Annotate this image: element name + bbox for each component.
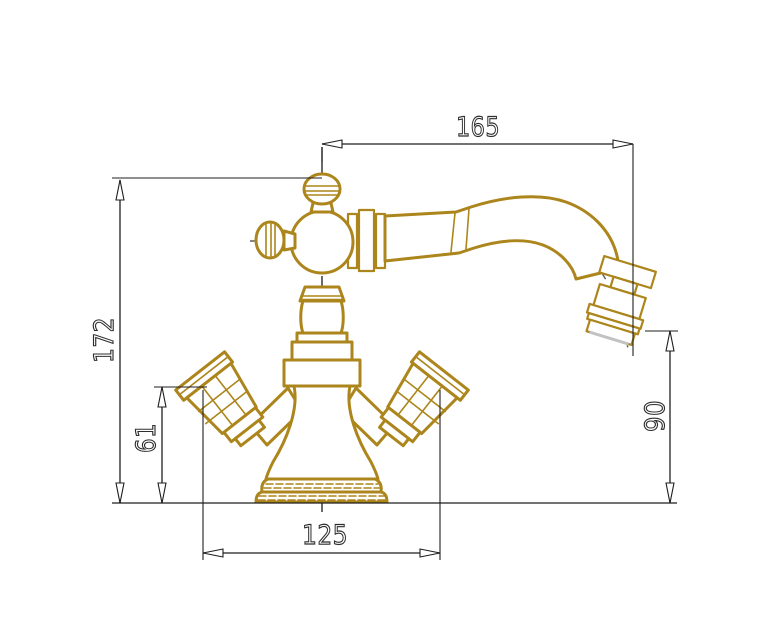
faucet-outline [176, 174, 658, 502]
dimension-label-handle-height: 61 [131, 423, 162, 453]
faucet-dimension-drawing: 165 172 61 90 125 [0, 0, 767, 641]
technical-drawing-canvas: 165 172 61 90 125 [0, 0, 767, 641]
valve-body-sphere [291, 211, 353, 273]
swan-neck-spout [385, 197, 618, 279]
dimension-outlet-height: 90 [640, 331, 678, 503]
top-screw-knob [304, 174, 340, 212]
right-cross-handle [368, 352, 469, 456]
dimension-label-handle-span: 125 [302, 520, 348, 551]
dimension-label-spout-reach: 165 [456, 112, 500, 143]
base-plinth [256, 479, 387, 502]
side-screw-knob [256, 222, 295, 258]
dimension-label-total-height: 172 [89, 317, 120, 363]
column-stack [284, 287, 360, 386]
left-cross-handle [176, 352, 277, 456]
dimension-label-outlet-height: 90 [640, 400, 671, 432]
